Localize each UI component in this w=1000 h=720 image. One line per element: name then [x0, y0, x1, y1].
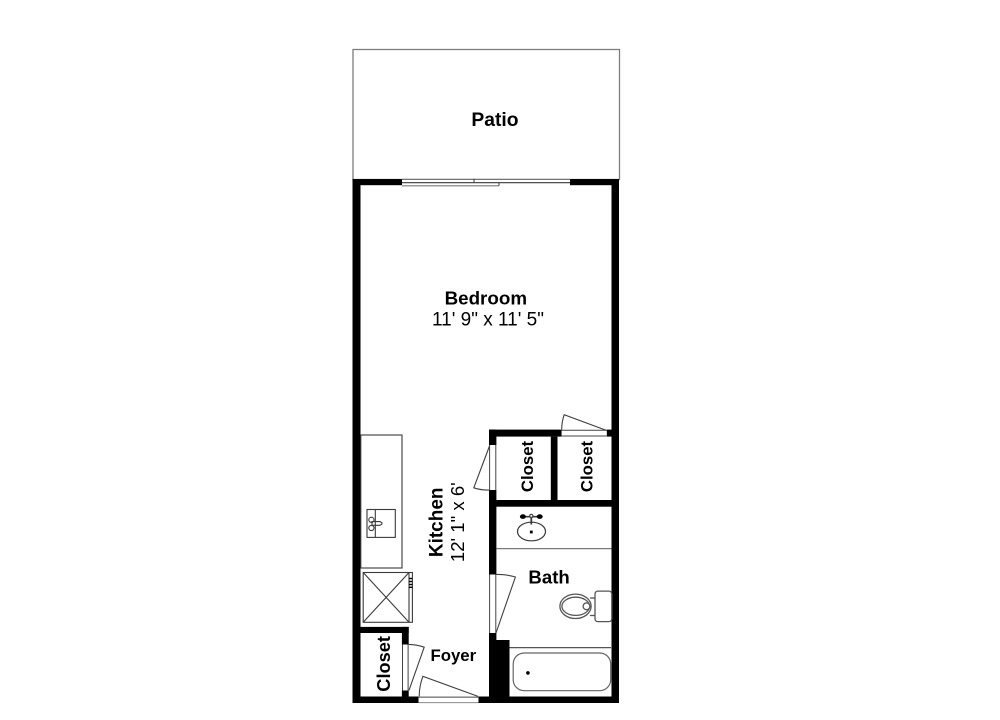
svg-text:11' 9" x 11' 5": 11' 9" x 11' 5" [432, 309, 544, 330]
svg-text:Bedroom: Bedroom [445, 288, 527, 309]
svg-text:Closet: Closet [374, 636, 394, 692]
svg-text:12' 1" x 6': 12' 1" x 6' [447, 482, 468, 562]
svg-text:Foyer: Foyer [430, 646, 476, 665]
svg-text:Closet: Closet [518, 440, 537, 492]
svg-text:Patio: Patio [471, 110, 518, 131]
svg-text:Kitchen: Kitchen [426, 487, 447, 557]
svg-text:Closet: Closet [578, 440, 597, 492]
svg-text:Bath: Bath [528, 567, 569, 588]
